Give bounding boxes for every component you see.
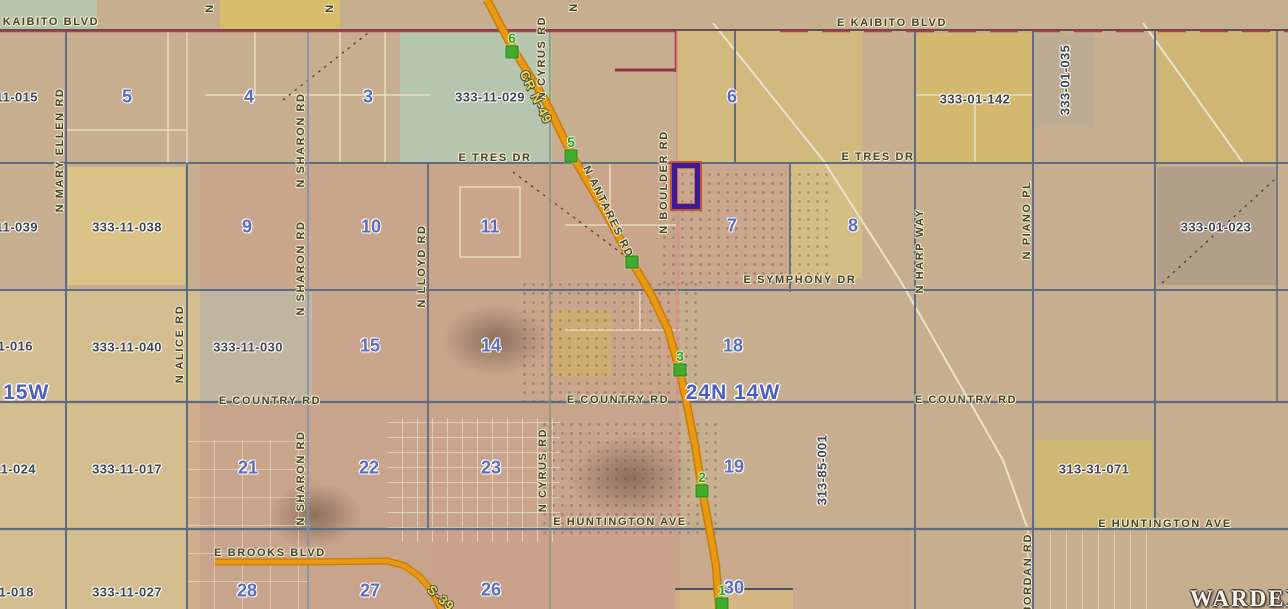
parcel-id-label: 333-11-024 (0, 462, 36, 477)
section-number: 5 (122, 87, 132, 108)
section-number: 9 (242, 217, 252, 238)
street-label-vertical: N CYRUS RD (537, 428, 549, 512)
street-label: E HUNTINGTON AVE (553, 516, 687, 528)
street-label: E SYMPHONY DR (744, 274, 857, 286)
street-label: E BROOKS BLVD (214, 547, 326, 559)
section-number: 21 (238, 458, 258, 479)
parcel-id-label: 333-01-023 (1181, 220, 1252, 235)
street-label: E COUNTRY RD (567, 394, 669, 406)
parcel-id-label: 333-11-029 (455, 90, 525, 105)
street-label-vertical: N SHARON RD (295, 430, 307, 525)
green-marker-number: 3 (676, 348, 684, 364)
highlighted-parcel-outline[interactable] (672, 163, 700, 209)
street-label: E HUNTINGTON AVE (1098, 518, 1232, 530)
parcel-id-label: 333-11-015 (0, 90, 38, 105)
street-label-vertical: N JORDAN RD (1022, 533, 1034, 609)
green-map-marker[interactable] (565, 150, 578, 163)
street-label-vertical: N (204, 3, 216, 13)
parcel-id-label-vertical: 333-01-035 (1058, 45, 1073, 116)
green-map-marker[interactable] (506, 46, 519, 59)
street-label-vertical: N (568, 2, 580, 12)
wardex-watermark: WARDEX (1190, 586, 1288, 609)
dashed-boundaries (283, 33, 1274, 283)
township-range-label: 24N 14W (686, 381, 781, 405)
street-label-vertical: N BOULDER RD (658, 130, 670, 234)
township-range-label: 24N 15W (0, 381, 49, 405)
street-label-vertical: N MARY ELLEN RD (54, 88, 66, 213)
parcel-id-label: 333-11-040 (92, 340, 162, 355)
green-marker-number: 5 (567, 134, 575, 150)
green-map-marker[interactable] (696, 485, 709, 498)
section-number: 19 (724, 457, 744, 478)
parcel-id-label: 333-11-038 (92, 220, 162, 235)
parcel-id-label: 333-11-039 (0, 220, 38, 235)
section-number: 15 (360, 336, 380, 357)
section-number: 30 (724, 578, 744, 599)
street-label-vertical: N SHARON RD (295, 220, 307, 315)
parcel-map-canvas[interactable]: KAIBITO BLVDE KAIBITO BLVDE TRES DRE TRE… (0, 0, 1288, 609)
street-label-vertical: N LLOYD RD (416, 224, 428, 307)
street-label: KAIBITO BLVD (3, 16, 99, 28)
section-number: 6 (727, 87, 737, 108)
section-number: 3 (363, 87, 373, 108)
section-number: 22 (359, 458, 379, 479)
green-map-marker[interactable] (716, 598, 729, 609)
green-map-marker[interactable] (626, 256, 639, 269)
section-number: 7 (727, 216, 737, 237)
section-number: 18 (723, 336, 743, 357)
parcel-id-label: 333-11-030 (213, 340, 283, 355)
section-number: 28 (237, 581, 257, 602)
section-number: 8 (848, 216, 858, 237)
street-label-vertical: N PIANO PL (1021, 181, 1033, 260)
section-number: 27 (360, 581, 380, 602)
parcel-id-label: 333-11-027 (92, 585, 162, 600)
green-map-marker[interactable] (674, 364, 687, 377)
section-number: 11 (480, 217, 499, 238)
street-label-vertical: N (324, 3, 336, 13)
street-label-vertical: N HARP WAY (914, 208, 926, 293)
street-label-vertical: N ALICE RD (174, 305, 186, 384)
parcel-id-label: 333-11-017 (92, 462, 162, 477)
section-number: 23 (481, 458, 501, 479)
section-number: 26 (481, 580, 501, 601)
parcel-id-label: 333-01-142 (940, 92, 1011, 107)
section-number: 14 (481, 336, 501, 357)
green-marker-number: 6 (508, 30, 516, 46)
red-boundary (0, 31, 1288, 72)
parcel-id-label: 333-11-018 (0, 585, 34, 600)
parcel-id-label: 313-31-071 (1059, 462, 1130, 477)
street-label: E COUNTRY RD (915, 394, 1017, 406)
street-label: E COUNTRY RD (219, 395, 321, 407)
green-marker-number: 2 (698, 469, 706, 485)
green-marker-number: 1 (718, 582, 726, 598)
street-label-vertical: N SHARON RD (295, 92, 307, 187)
section-number: 10 (361, 217, 381, 238)
parcel-id-label: 333-11-016 (0, 339, 33, 354)
street-label: E TRES DR (841, 151, 914, 163)
parcel-id-label-vertical: 313-85-001 (815, 435, 830, 506)
street-label: E TRES DR (458, 152, 531, 164)
street-label: E KAIBITO BLVD (837, 17, 947, 29)
section-number: 4 (244, 87, 254, 108)
